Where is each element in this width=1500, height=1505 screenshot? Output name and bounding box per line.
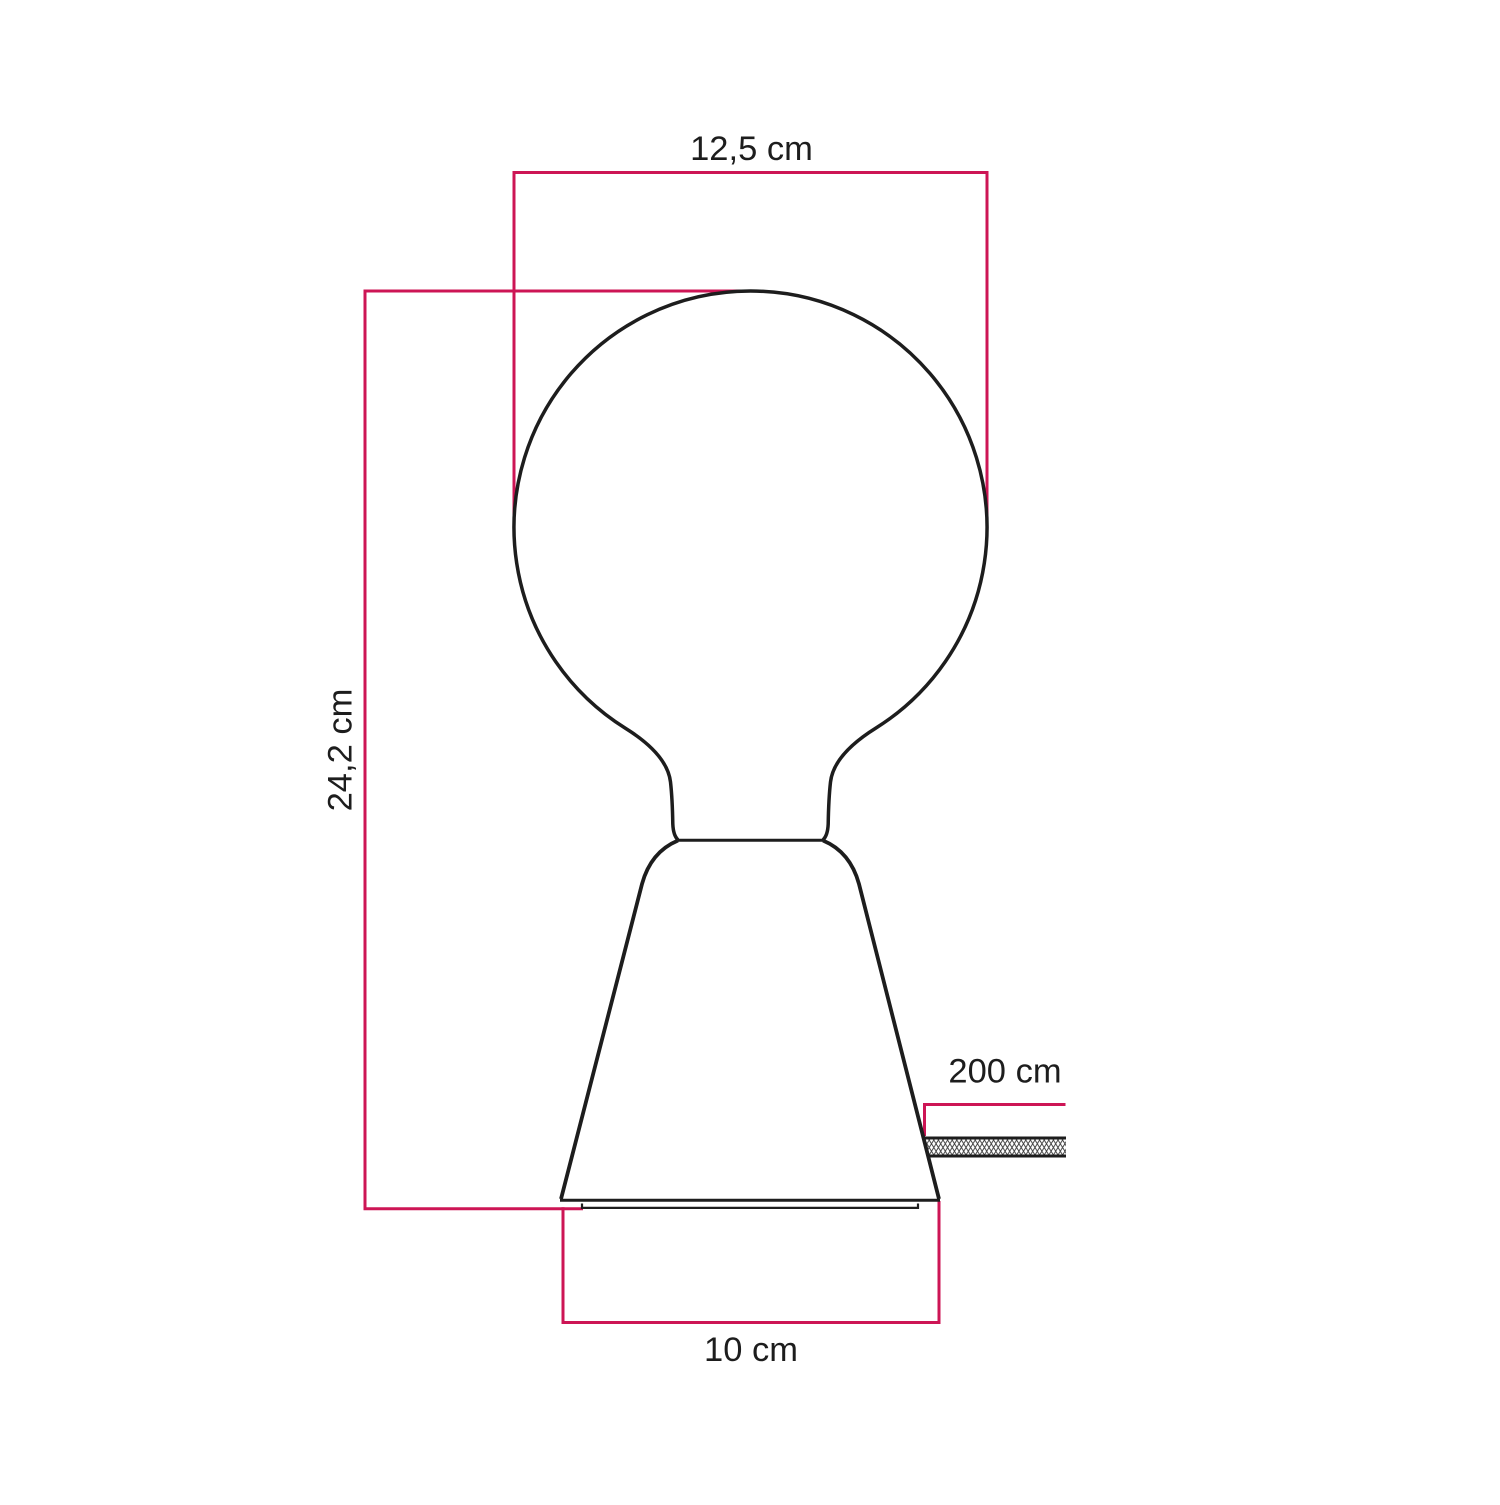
svg-text:10 cm: 10 cm bbox=[704, 1331, 798, 1369]
svg-text:200 cm: 200 cm bbox=[948, 1053, 1061, 1091]
svg-text:24,2 cm: 24,2 cm bbox=[322, 689, 360, 812]
svg-text:12,5 cm: 12,5 cm bbox=[690, 130, 813, 168]
